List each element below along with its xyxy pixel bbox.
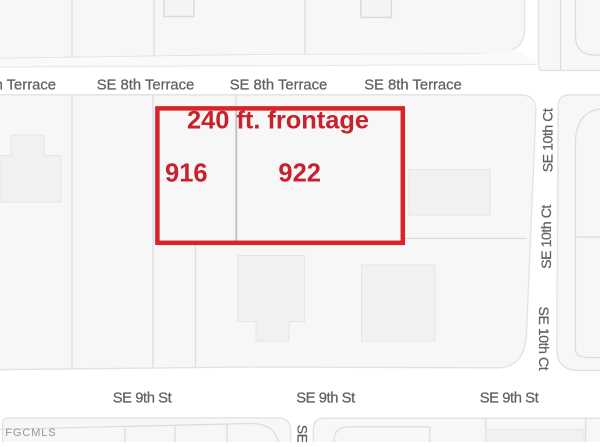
- svg-text:SE 8th Terrace: SE 8th Terrace: [364, 78, 462, 94]
- svg-text:SE 9th St: SE 9th St: [296, 390, 355, 406]
- svg-text:SE 8th Terrace: SE 8th Terrace: [230, 78, 328, 94]
- svg-text:SE 10th Ct: SE 10th Ct: [540, 108, 556, 172]
- svg-text:SE 8th Terrace: SE 8th Terrace: [0, 78, 56, 94]
- svg-text:SE 8th Terrace: SE 8th Terrace: [97, 78, 195, 94]
- svg-text:SE 10th Ct: SE 10th Ct: [538, 205, 554, 269]
- svg-text:240 ft. frontage: 240 ft. frontage: [187, 106, 369, 134]
- svg-text:SE 10th Ct: SE 10th Ct: [295, 425, 311, 442]
- svg-text:FGCMLS: FGCMLS: [5, 427, 56, 439]
- svg-text:SE 9th St: SE 9th St: [113, 390, 172, 406]
- svg-text:SE 9th St: SE 9th St: [480, 390, 539, 406]
- svg-text:922: 922: [278, 159, 321, 187]
- svg-text:SE 10th Ct: SE 10th Ct: [536, 307, 552, 371]
- svg-text:916: 916: [165, 159, 208, 187]
